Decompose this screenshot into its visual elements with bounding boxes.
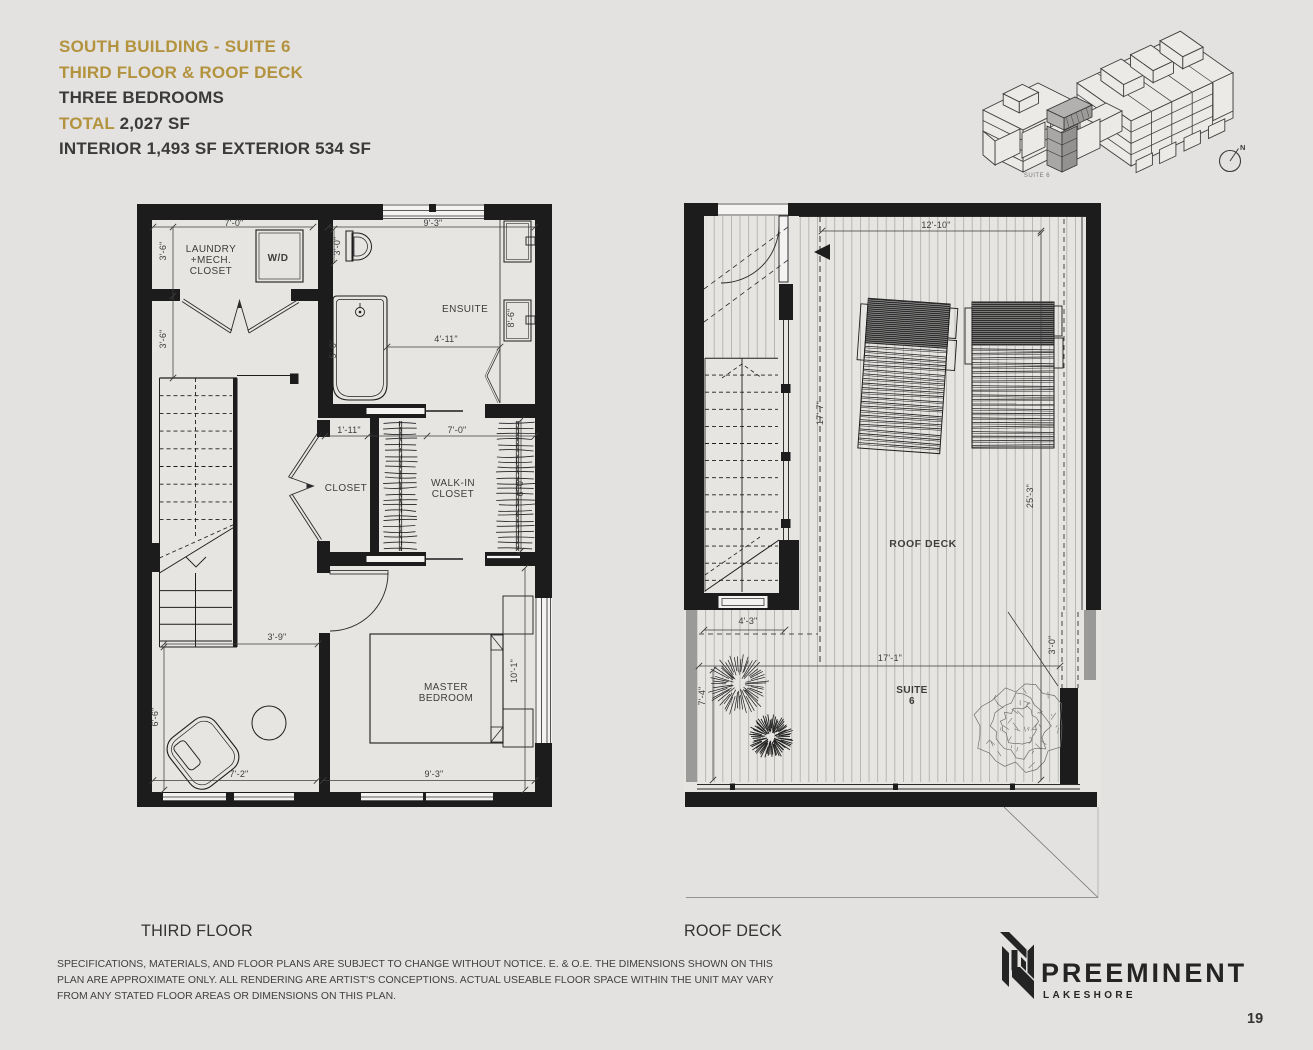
svg-text:SUITE: SUITE: [896, 685, 927, 696]
svg-text:6'-0": 6'-0": [515, 478, 525, 497]
svg-text:17'-1": 17'-1": [878, 653, 902, 663]
svg-text:+MECH.: +MECH.: [191, 255, 231, 266]
svg-text:7'-0": 7'-0": [448, 425, 467, 435]
svg-text:3'-9": 3'-9": [268, 632, 287, 642]
svg-text:3'-0": 3'-0": [1047, 636, 1057, 655]
svg-text:8'-6": 8'-6": [506, 309, 516, 328]
svg-text:BEDROOM: BEDROOM: [419, 693, 473, 704]
svg-text:CLOSET: CLOSET: [432, 489, 474, 500]
svg-text:SUITE 6: SUITE 6: [1024, 173, 1050, 179]
svg-text:7'-0": 7'-0": [225, 218, 244, 228]
svg-text:4'-3": 4'-3": [739, 616, 758, 626]
svg-text:7'-4": 7'-4": [697, 687, 707, 706]
svg-text:9'-3": 9'-3": [425, 769, 444, 779]
svg-text:CLOSET: CLOSET: [190, 266, 232, 277]
svg-text:W/D: W/D: [268, 253, 289, 264]
svg-text:ENSUITE: ENSUITE: [442, 304, 488, 315]
svg-text:3'-0": 3'-0": [332, 237, 342, 256]
svg-text:3'-6": 3'-6": [158, 330, 168, 349]
svg-text:MASTER: MASTER: [424, 682, 468, 693]
svg-text:10'-1": 10'-1": [509, 659, 519, 683]
svg-text:9'-3": 9'-3": [424, 218, 443, 228]
svg-text:3'-6": 3'-6": [158, 242, 168, 261]
svg-text:7'-2": 7'-2": [230, 769, 249, 779]
svg-text:CLOSET: CLOSET: [325, 483, 367, 494]
svg-text:17'-7": 17'-7": [815, 401, 825, 425]
svg-text:ROOF DECK: ROOF DECK: [889, 538, 957, 550]
svg-text:1'-11": 1'-11": [337, 425, 360, 435]
svg-text:WALK-IN: WALK-IN: [431, 478, 475, 489]
svg-text:6'-6": 6'-6": [150, 708, 160, 727]
svg-text:25'-3": 25'-3": [1025, 484, 1035, 508]
svg-text:6: 6: [909, 696, 915, 707]
svg-text:12'-10": 12'-10": [921, 220, 950, 230]
svg-text:N: N: [1240, 143, 1245, 152]
svg-text:LAUNDRY: LAUNDRY: [186, 244, 236, 255]
svg-text:5'-0": 5'-0": [328, 340, 338, 359]
svg-text:4'-11": 4'-11": [434, 334, 457, 344]
